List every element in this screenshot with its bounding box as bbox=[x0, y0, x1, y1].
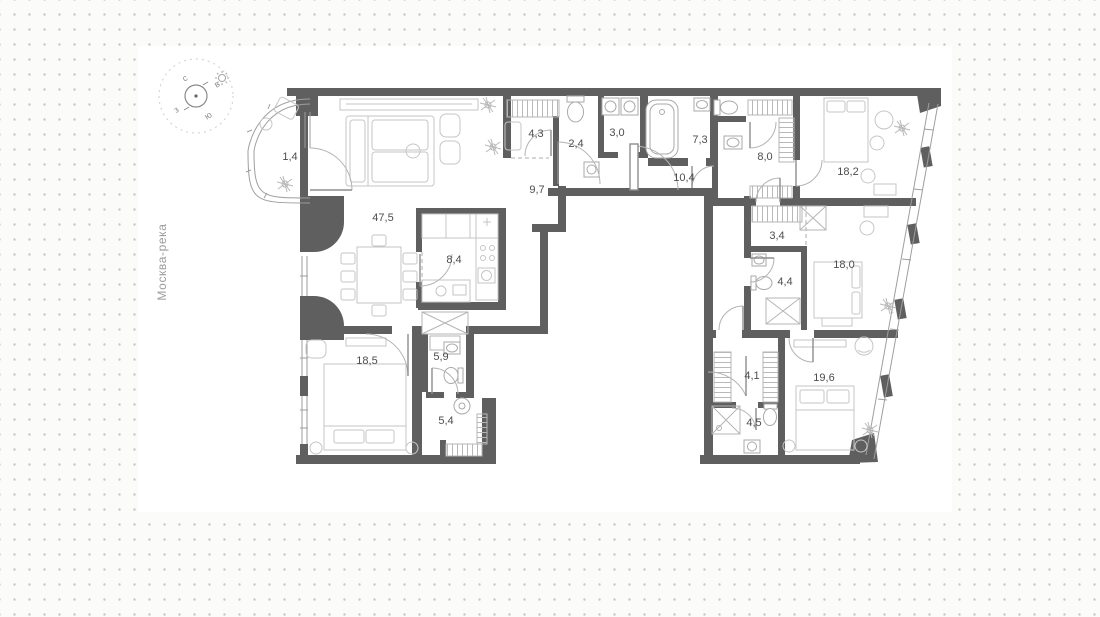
compass-south-label: ю bbox=[203, 109, 214, 121]
room-label-kitchen: 8,4 bbox=[446, 254, 461, 266]
room-label-bathroom-2: 8,0 bbox=[757, 151, 772, 163]
room-label-wardrobe-2: 3,4 bbox=[769, 230, 784, 242]
room-label-bedroom-1: 18,2 bbox=[837, 166, 858, 178]
compass-west-label: з bbox=[172, 104, 181, 115]
sun-icon bbox=[215, 71, 229, 85]
room-label-hallway-2: 5,4 bbox=[438, 415, 453, 427]
bedroom-1-furniture bbox=[824, 98, 896, 195]
bedroom-4-furniture bbox=[783, 337, 873, 452]
room-label-wardrobe-3: 4,1 bbox=[744, 370, 759, 382]
room-label-wardrobe-1: 4,3 bbox=[528, 128, 543, 140]
living-room-furniture bbox=[340, 99, 478, 316]
room-label-wc: 2,4 bbox=[568, 138, 583, 150]
walls bbox=[287, 88, 941, 464]
floor-plan-page: { "page": { "type": "apartment-floor-pla… bbox=[0, 0, 1100, 617]
room-label-bedroom-2: 18,0 bbox=[833, 259, 854, 271]
room-label-balcony: 1,4 bbox=[282, 151, 297, 163]
room-label-living-dining: 47,5 bbox=[372, 212, 393, 224]
doors bbox=[310, 122, 822, 430]
room-label-laundry: 3,0 bbox=[609, 127, 624, 139]
floor-plan-svg: с в ю з Москва-река bbox=[0, 0, 1100, 617]
room-label-bathroom-4: 5,9 bbox=[433, 351, 448, 363]
room-label-entrance-hall: 10,4 bbox=[673, 172, 694, 184]
room-label-hallway-1: 9,7 bbox=[529, 184, 544, 196]
room-label-bathroom-5: 4,5 bbox=[746, 417, 761, 429]
door-arcs bbox=[310, 122, 822, 430]
compass-rose: с в ю з bbox=[159, 59, 233, 134]
room-label-bedroom-3: 18,5 bbox=[356, 355, 377, 367]
balcony-furniture bbox=[260, 96, 299, 130]
room-label-bedroom-4: 19,6 bbox=[813, 372, 834, 384]
room-label-bathroom-3: 4,4 bbox=[777, 276, 792, 288]
entrance-door-leaf bbox=[630, 144, 638, 190]
compass-center-dot bbox=[194, 94, 197, 97]
compass-north-label: с bbox=[180, 72, 190, 83]
room-label-bathroom-1: 7,3 bbox=[692, 134, 707, 146]
compass-east-label: в bbox=[212, 79, 222, 90]
river-label: Москва-река bbox=[155, 223, 169, 300]
